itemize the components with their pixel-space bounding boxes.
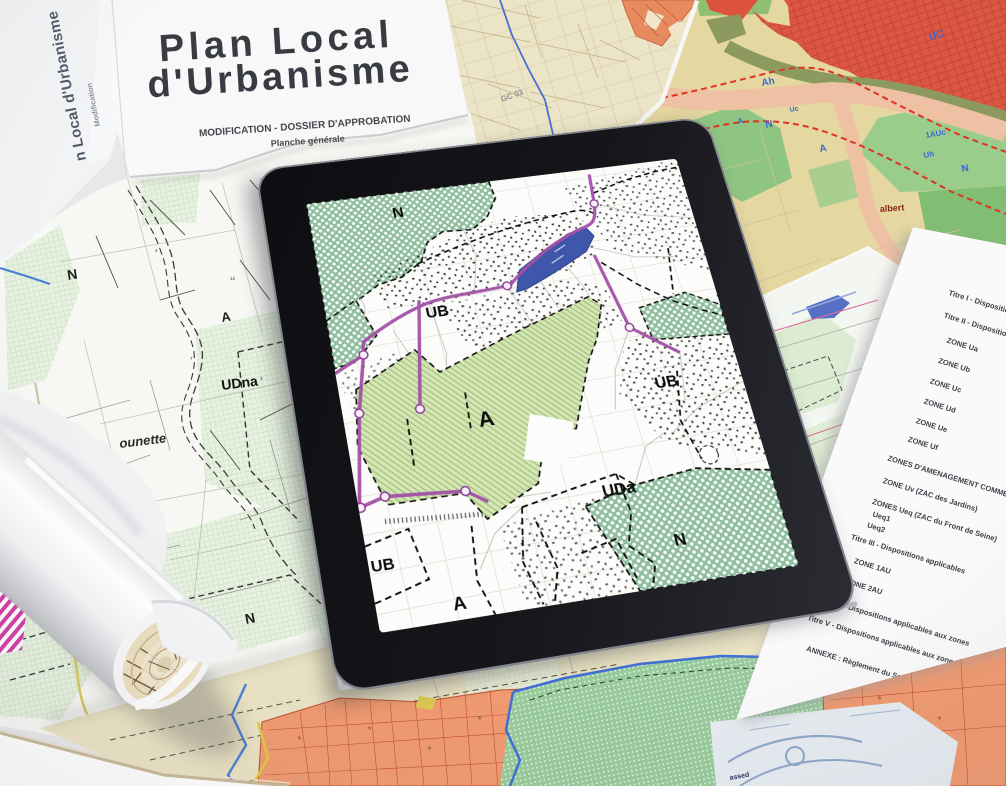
svg-text:UB: UB <box>653 373 681 393</box>
svg-text:UB: UB <box>424 303 450 322</box>
svg-text:UB: UB <box>369 554 396 576</box>
